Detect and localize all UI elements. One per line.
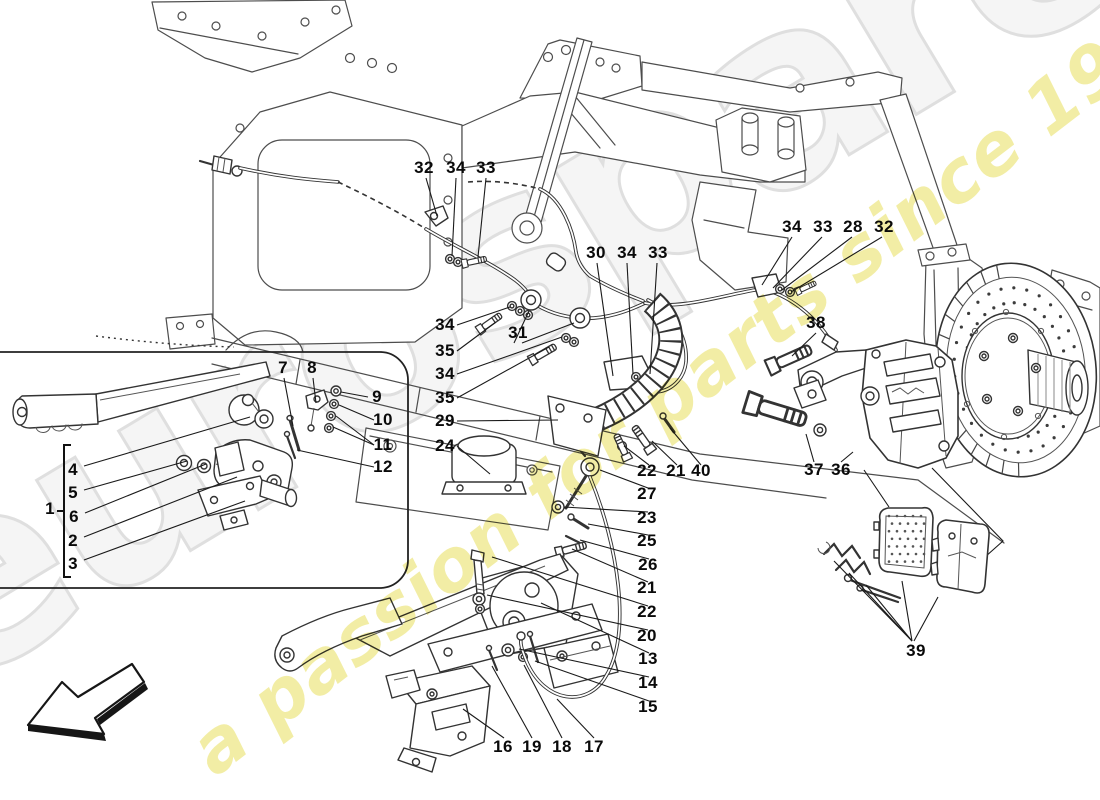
part-number-label: 22 — [637, 602, 657, 622]
part-number-label: 35 — [435, 341, 455, 361]
part-number-label: 10 — [373, 410, 393, 430]
part-number-label: 24 — [435, 436, 455, 456]
part-number-label: 28 — [843, 217, 863, 237]
part-number-label: 35 — [435, 388, 455, 408]
part-number-label: 3 — [68, 554, 78, 574]
part-number-label: 16 — [493, 737, 513, 757]
part-number-label: 33 — [813, 217, 833, 237]
part-number-label: 32 — [874, 217, 894, 237]
part-number-label: 30 — [586, 243, 606, 263]
brake-pads — [818, 468, 1003, 602]
part-number-label: 2 — [68, 531, 78, 551]
part-number-label: 7 — [278, 358, 288, 378]
part-number-label: 39 — [906, 641, 926, 661]
part-number-label: 34 — [782, 217, 802, 237]
part-number-label: 11 — [374, 435, 393, 455]
part-number-label: 4 — [68, 460, 78, 480]
part-number-label: 34 — [446, 158, 466, 178]
mounting-bracket — [386, 666, 490, 772]
part-number-label: 1 — [45, 499, 55, 519]
part-number-label: 22 — [637, 461, 657, 481]
part-number-label: 36 — [831, 460, 851, 480]
lever-grip — [16, 394, 98, 428]
part-number-label: 33 — [476, 158, 496, 178]
part-number-label: 14 — [638, 673, 658, 693]
part-number-label: 21 — [637, 578, 657, 598]
part-number-label: 31 — [508, 323, 528, 343]
part-number-label: 9 — [372, 387, 382, 407]
part-number-label: 34 — [435, 364, 455, 384]
part-number-label: 20 — [637, 626, 657, 646]
part-number-label: 6 — [69, 507, 79, 527]
part-number-label: 33 — [648, 243, 668, 263]
part-number-label: 19 — [522, 737, 542, 757]
part-number-label: 37 — [804, 460, 824, 480]
parts-diagram-page: eurospares — [0, 0, 1100, 800]
part-number-label: 18 — [552, 737, 572, 757]
part-number-label: 8 — [307, 358, 317, 378]
part-number-label: 29 — [435, 411, 455, 431]
part-number-label: 34 — [435, 315, 455, 335]
part-number-label: 23 — [637, 508, 657, 528]
part-number-label: 15 — [638, 697, 658, 717]
part-number-label: 25 — [637, 531, 657, 551]
part-number-label: 40 — [691, 461, 711, 481]
part-number-label: 13 — [638, 649, 658, 669]
part-number-label: 32 — [414, 158, 434, 178]
part-number-label: 38 — [806, 313, 826, 333]
part-number-label: 5 — [68, 483, 78, 503]
part-number-label: 17 — [584, 737, 604, 757]
part-number-label: 34 — [617, 243, 637, 263]
part-number-label: 12 — [373, 457, 393, 477]
diagram-canvas: eurospares — [0, 0, 1100, 800]
part-number-label: 26 — [638, 555, 658, 575]
part-number-label: 27 — [637, 484, 657, 504]
part-number-label: 21 — [666, 461, 686, 481]
